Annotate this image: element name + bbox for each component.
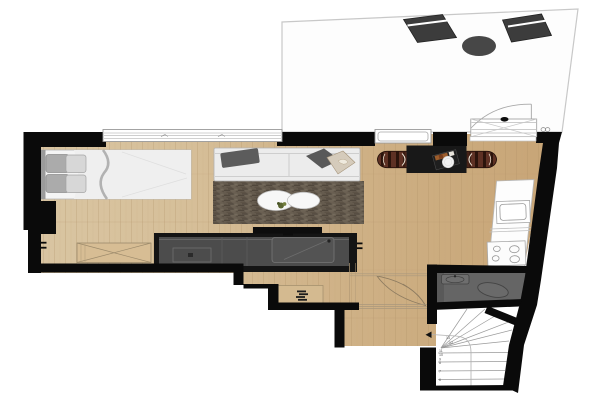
svg-text:12: 12	[449, 341, 453, 345]
svg-text:7: 7	[439, 370, 441, 374]
svg-text:13: 13	[446, 336, 450, 340]
svg-text:8: 8	[439, 361, 441, 365]
svg-text:10: 10	[439, 353, 443, 357]
svg-text:6: 6	[439, 378, 441, 382]
